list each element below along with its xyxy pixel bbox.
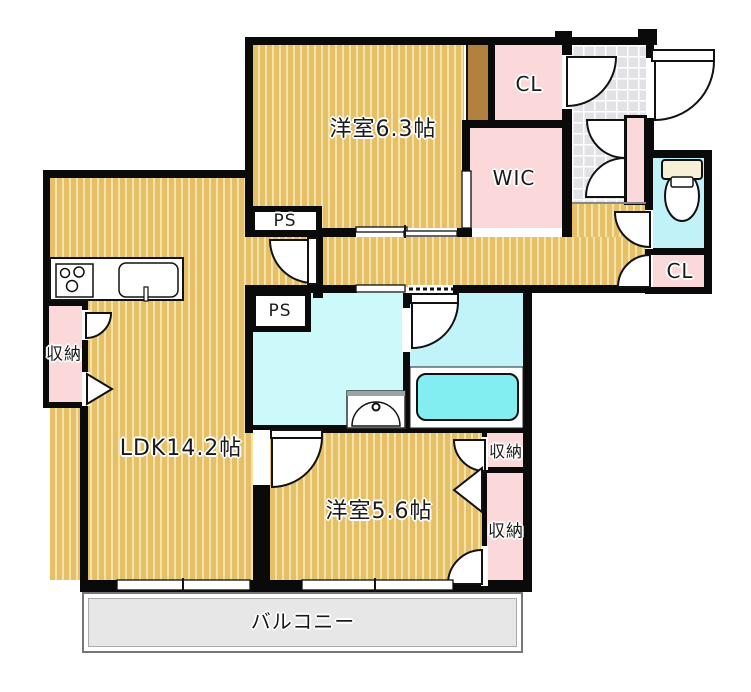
faucet-icon (144, 287, 148, 301)
storage-bedroom2-lower-label: 収納 (488, 517, 524, 542)
ldk-label: LDK14.2帖 (120, 430, 243, 462)
sliding-door-icon (356, 225, 457, 238)
floor-plan: 洋室6.3帖 CL WIC PS PS CL 収納 LDK14.2帖 洋室5.6… (0, 0, 751, 692)
shoe-cabinet-door-icon (587, 120, 625, 158)
bedroom2-door-icon (272, 437, 322, 487)
wic-label: WIC (493, 166, 536, 190)
pipe-space-upper-label: PS (273, 211, 296, 231)
entrance-door-arc-icon (655, 61, 714, 120)
kitchen-counter-icon (50, 258, 183, 301)
wic-door-icon (462, 171, 471, 228)
bedroom2-label: 洋室5.6帖 (326, 493, 433, 525)
storage-bedroom2-fold-door-icon (454, 468, 482, 512)
storage-bedroom2-door-icon (454, 440, 485, 471)
closet-top-label: CL (515, 72, 542, 96)
balcony-label: バルコニー (251, 606, 356, 635)
washbasin-icon (347, 391, 405, 428)
storage-kitchen-fold-door-icon (87, 374, 112, 404)
storage-kitchen-door-icon (86, 313, 111, 338)
washroom-opening-icon (356, 285, 405, 292)
bathtub-icon (410, 367, 523, 428)
genkan-closet-door-icon (567, 57, 616, 106)
bathroom-door-leaf-icon (411, 294, 458, 303)
shoe-cabinet-door-icon (586, 158, 625, 197)
storage-kitchen-label: 収納 (46, 340, 82, 365)
entrance-door-leaf-icon (652, 50, 714, 61)
bedroom1-label: 洋室6.3帖 (330, 111, 437, 143)
bathroom-door-icon (412, 302, 458, 348)
fixtures-overlay (0, 0, 751, 692)
storage-bedroom2-upper-label: 収納 (489, 438, 523, 462)
hallway-ldk-door-leaf-icon (308, 238, 317, 284)
window-icon (302, 578, 453, 592)
toilet-door-icon (615, 212, 650, 247)
toilet-icon (662, 160, 702, 221)
storage-bedroom2-door-icon (448, 550, 482, 584)
window-icon (117, 578, 250, 592)
pipe-space-lower-label: PS (268, 301, 291, 321)
bedroom2-door-leaf-icon (271, 430, 322, 438)
closet-hall-door-icon (618, 255, 650, 287)
closet-hall-label: CL (666, 259, 693, 283)
hallway-ldk-door-icon (270, 240, 313, 283)
